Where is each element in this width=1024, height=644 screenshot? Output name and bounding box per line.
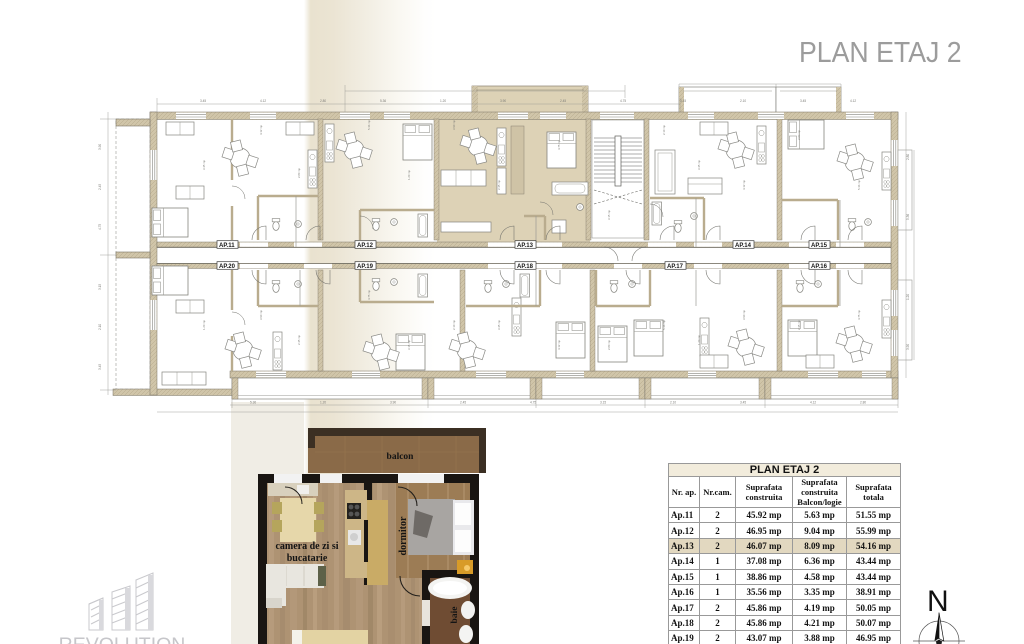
svg-text:REVOLUTION: REVOLUTION bbox=[59, 634, 186, 644]
